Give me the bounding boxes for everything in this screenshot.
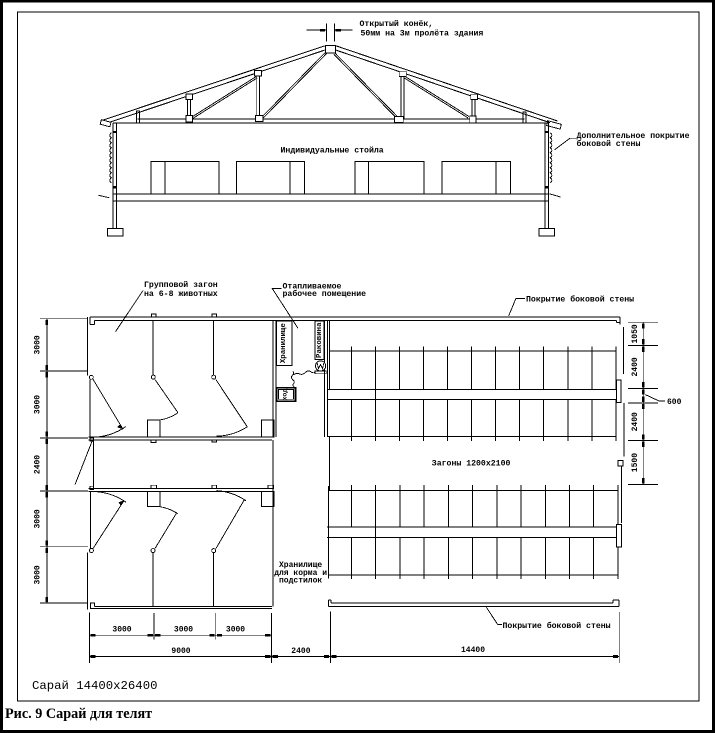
svg-text:Открытый конёк,: Открытый конёк, bbox=[360, 19, 434, 29]
svg-text:3000: 3000 bbox=[34, 565, 43, 584]
svg-text:3000: 3000 bbox=[112, 626, 131, 635]
svg-text:Групповой загон: Групповой загон bbox=[144, 280, 218, 290]
svg-text:Сарай 14400х26400: Сарай 14400х26400 bbox=[32, 679, 157, 693]
svg-text:боковой стены: боковой стены bbox=[577, 138, 641, 149]
svg-text:Покрытие боковой стены: Покрытие боковой стены bbox=[503, 620, 611, 631]
svg-text:1500: 1500 bbox=[631, 453, 640, 472]
svg-text:600: 600 bbox=[667, 398, 682, 407]
svg-text:на 6-8 животных: на 6-8 животных bbox=[144, 290, 218, 299]
svg-text:2400: 2400 bbox=[291, 647, 310, 656]
svg-text:3000: 3000 bbox=[34, 335, 43, 354]
svg-text:50мм на 3м пролёта здания: 50мм на 3м пролёта здания bbox=[361, 29, 484, 39]
svg-text:подстилок: подстилок bbox=[279, 577, 322, 586]
svg-text:2400: 2400 bbox=[34, 455, 43, 474]
svg-text:Индивидуальные стойла: Индивидуальные стойла bbox=[281, 145, 384, 155]
svg-text:9000: 9000 bbox=[171, 647, 190, 656]
svg-text:Загоны 1200х2100: Загоны 1200х2100 bbox=[432, 459, 511, 468]
svg-text:1050: 1050 bbox=[631, 324, 640, 343]
svg-text:Раковина: Раковина bbox=[316, 322, 324, 358]
svg-text:3000: 3000 bbox=[34, 395, 43, 414]
svg-text:3000: 3000 bbox=[226, 626, 245, 635]
svg-text:рабочее помещение: рабочее помещение bbox=[283, 288, 367, 299]
svg-text:3000: 3000 bbox=[174, 626, 193, 635]
svg-text:2400: 2400 bbox=[631, 412, 640, 431]
svg-text:ход: ход bbox=[281, 389, 288, 401]
svg-text:Рис. 9 Сарай для телят: Рис. 9 Сарай для телят bbox=[5, 706, 152, 722]
svg-text:3000: 3000 bbox=[34, 509, 43, 528]
svg-text:2400: 2400 bbox=[631, 357, 640, 376]
svg-text:Покрытие боковой стены: Покрытие боковой стены bbox=[526, 294, 634, 305]
svg-text:14400: 14400 bbox=[461, 646, 485, 655]
svg-text:Хранилище: Хранилище bbox=[280, 323, 288, 363]
